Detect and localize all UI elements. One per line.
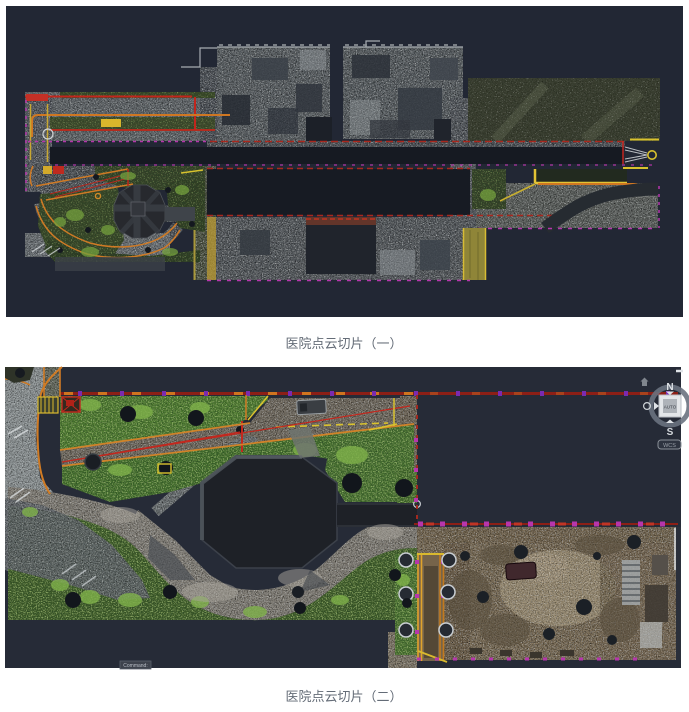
svg-text:WCS: WCS [663, 443, 676, 449]
svg-text:Command:: Command: [123, 663, 147, 669]
svg-text:S: S [667, 427, 674, 438]
svg-text:医院点云切片（一）: 医院点云切片（一） [285, 336, 402, 351]
svg-text:医院点云切片（二）: 医院点云切片（二） [285, 689, 402, 704]
svg-text:N: N [666, 382, 673, 393]
svg-text:AUTO: AUTO [664, 405, 677, 410]
